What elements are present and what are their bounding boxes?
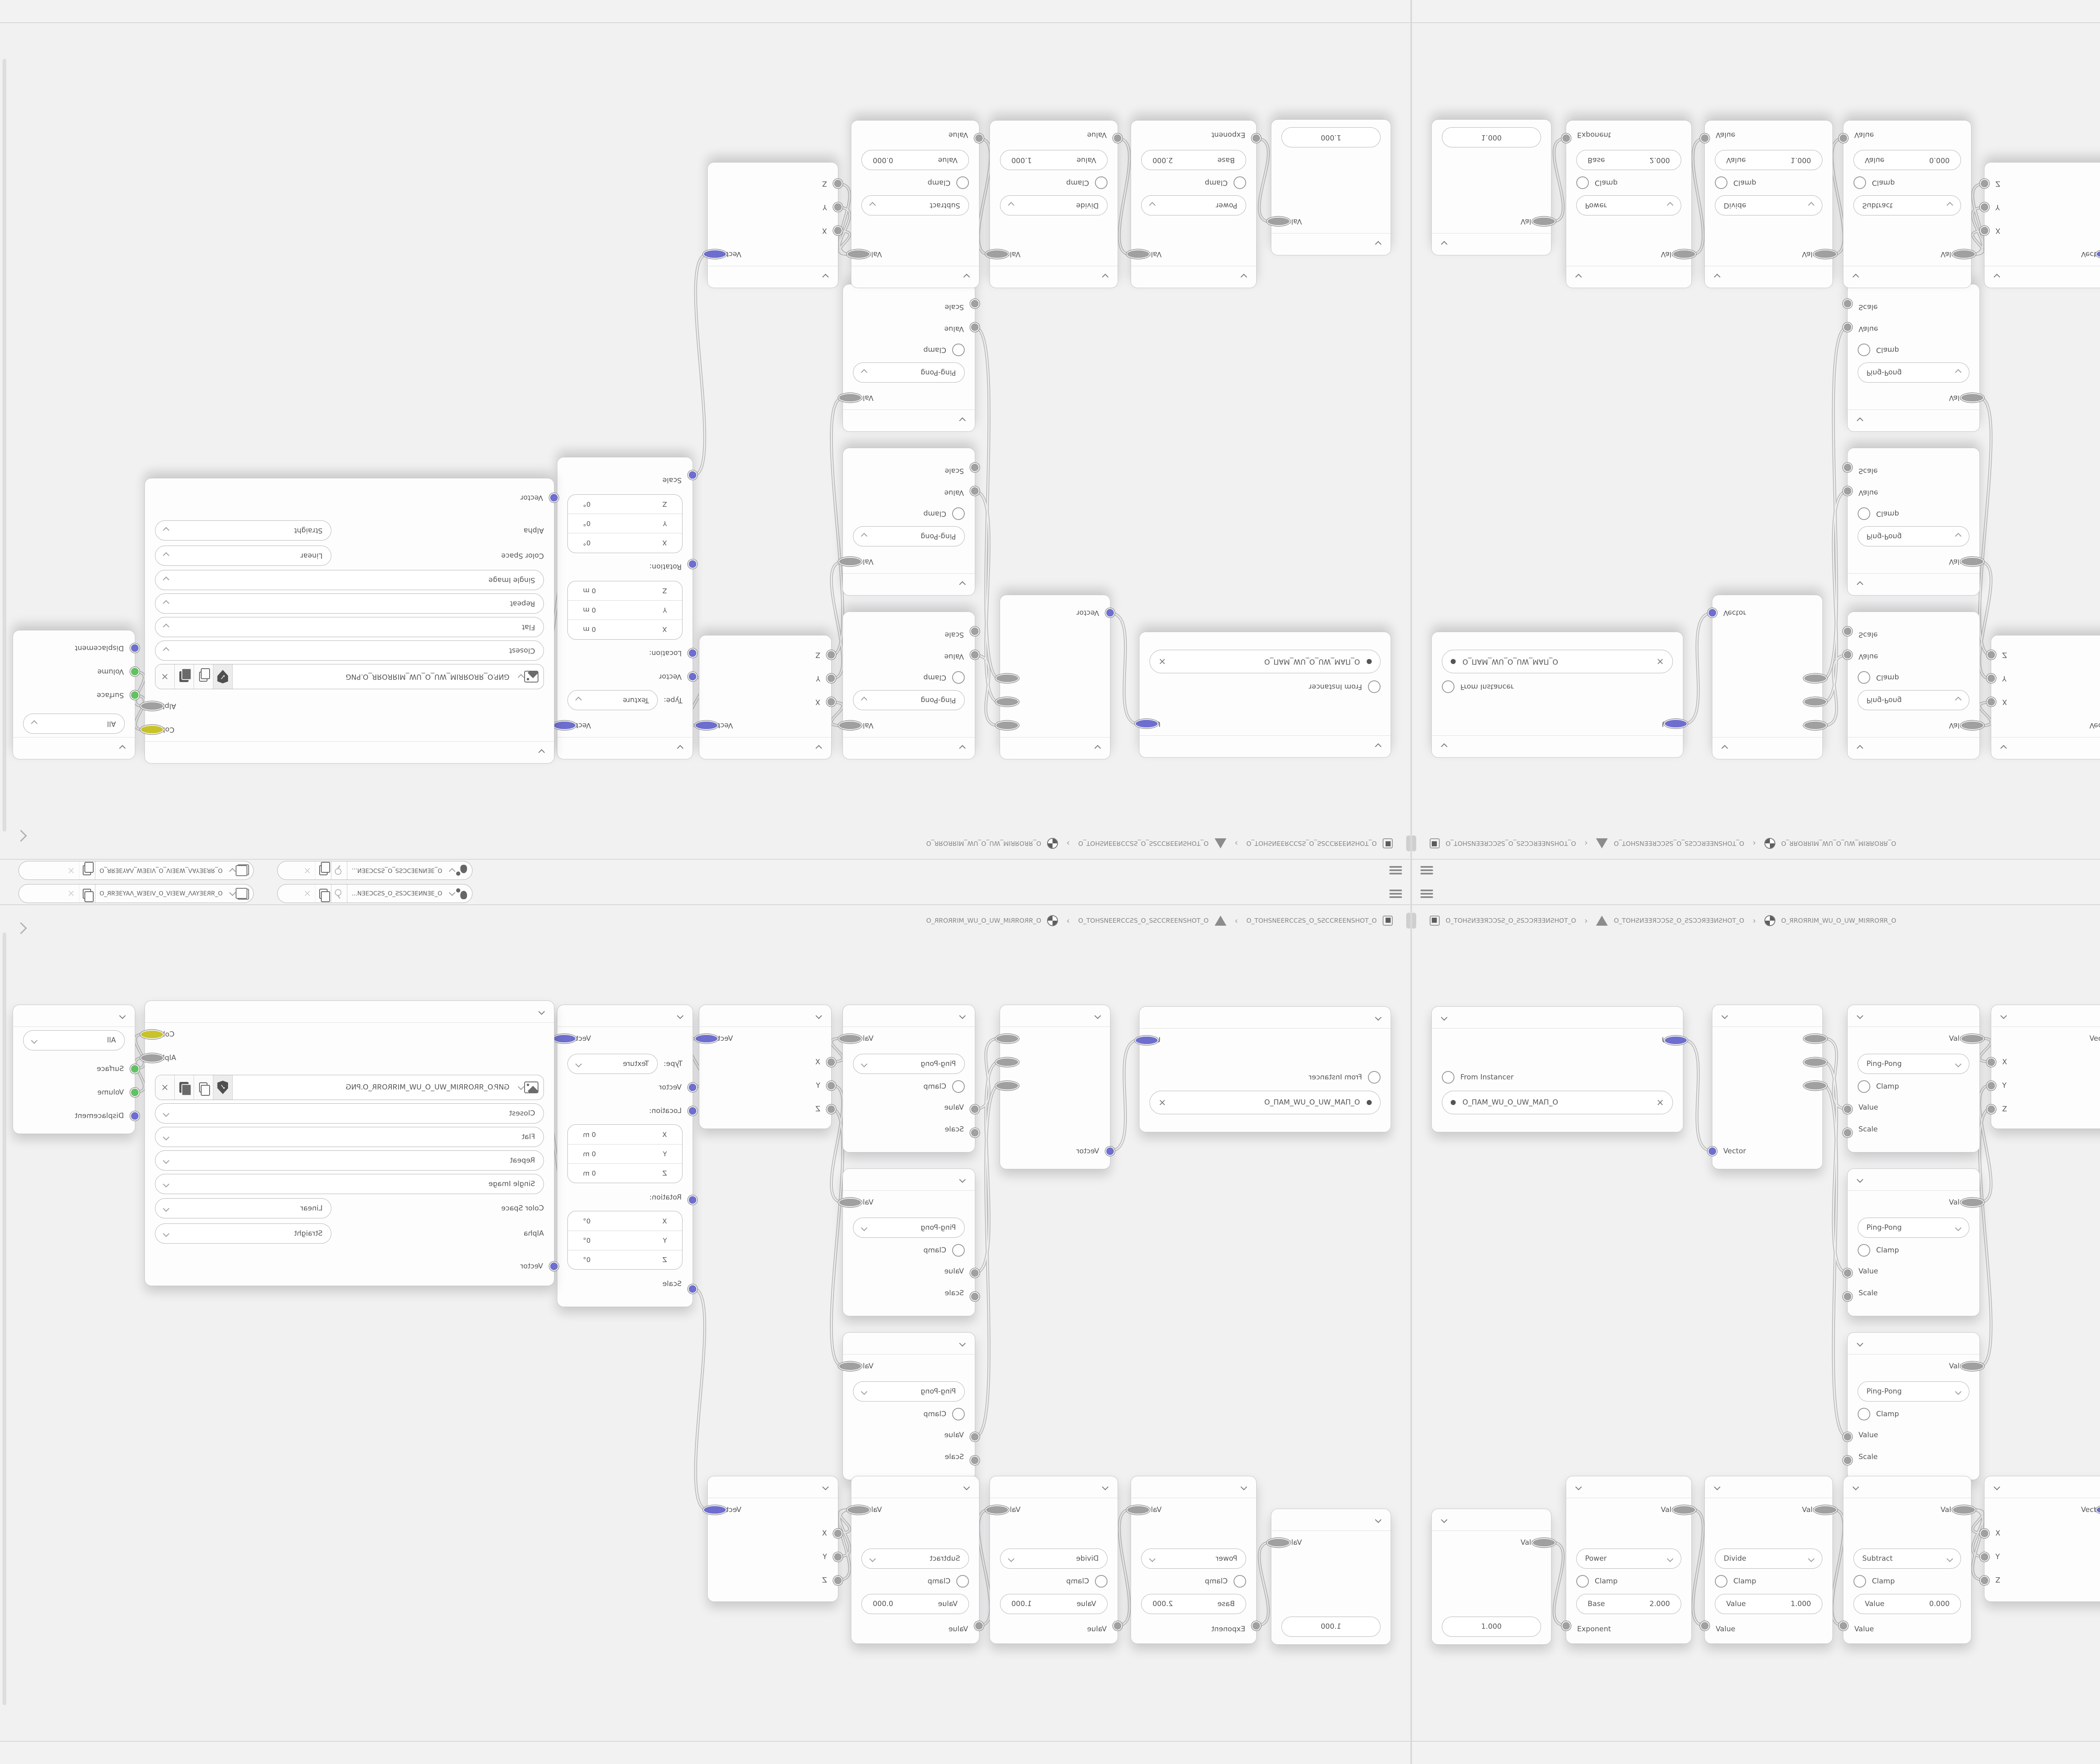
socket-uv-out[interactable] — [1135, 719, 1158, 728]
node-math-power[interactable]: Value Power Clamp Base2.000 Exponent — [1566, 120, 1692, 288]
socket-displacement-in[interactable] — [130, 643, 139, 653]
location-z-field[interactable]: Z0 m — [568, 1163, 682, 1183]
socket-value-in[interactable] — [974, 134, 984, 143]
clamp-checkbox[interactable]: Clamp — [843, 668, 975, 687]
socket-value-out[interactable] — [838, 393, 862, 402]
node-uv-map[interactable]: UV From Instancer O_ПAM_WU_O_UW_MAП_O× — [1139, 1006, 1391, 1132]
socket-uv-out[interactable] — [1135, 1036, 1158, 1045]
node-collapse-button[interactable] — [843, 1333, 975, 1354]
node-math-ping-pong-2[interactable]: Value Ping-Pong Clamp Value Scale — [1847, 1168, 1980, 1316]
socket-value-out[interactable] — [838, 557, 862, 566]
rotation-z-field[interactable]: Z0° — [568, 1250, 682, 1269]
socket-z-in[interactable] — [827, 1105, 836, 1114]
pin-scene-button[interactable] — [331, 861, 347, 879]
socket-value-in[interactable] — [1843, 1432, 1852, 1441]
mapping-type-dropdown[interactable]: Texture — [567, 1054, 658, 1074]
socket-x-in[interactable] — [1987, 1058, 1996, 1067]
rotation-xyz-fields[interactable]: X0° Y0° Z0° — [567, 494, 682, 553]
socket-value-in[interactable] — [1843, 323, 1852, 332]
region-handle[interactable] — [1406, 835, 1411, 851]
socket-value-in[interactable] — [1113, 1621, 1122, 1630]
image-name[interactable]: GИP.O_ЯROЯRIM_WU_O_UW_MIЯROЯR_O.PNG — [233, 672, 515, 681]
socket-vector-out[interactable] — [553, 721, 576, 730]
hamburger-menu-icon[interactable] — [1420, 865, 1433, 876]
mapping-type-dropdown[interactable]: Texture — [567, 690, 658, 710]
socket-color-out[interactable] — [140, 1030, 164, 1039]
socket-exponent-in[interactable] — [1562, 1621, 1571, 1630]
clamp-checkbox[interactable]: Clamp — [1705, 1572, 1832, 1591]
socket-scale-in[interactable] — [970, 1292, 979, 1301]
target-dropdown[interactable]: All — [23, 714, 125, 734]
rotation-xyz-fields[interactable]: X0° Y0° Z0° — [567, 1211, 682, 1270]
copy-image-button[interactable] — [194, 1075, 213, 1100]
node-separate-xyz[interactable]: X Y Z Vector — [1712, 1005, 1823, 1169]
node-collapse-button[interactable] — [145, 1001, 554, 1023]
operation-dropdown[interactable]: Ping-Pong — [1858, 1218, 1969, 1238]
clamp-checkbox[interactable]: Clamp — [1843, 173, 1971, 192]
uv-map-selector[interactable]: O_ПAM_WU_O_UW_MAП_O× — [1442, 650, 1673, 673]
socket-value-out[interactable] — [1961, 393, 1984, 402]
node-collapse-button[interactable] — [1705, 266, 1832, 288]
node-collapse-button[interactable] — [1848, 409, 1979, 431]
close-icon[interactable]: × — [1656, 656, 1664, 667]
socket-value-out[interactable] — [1672, 1505, 1696, 1515]
socket-scale-in[interactable] — [970, 1128, 979, 1137]
node-material-output[interactable]: All Surface Volume Displacement — [13, 630, 135, 759]
node-collapse-button[interactable] — [851, 1476, 979, 1498]
socket-z-in[interactable] — [1987, 1105, 1996, 1114]
socket-vector-out[interactable] — [695, 721, 718, 730]
unlink-scene-button[interactable]: × — [299, 885, 315, 903]
projection-dropdown[interactable]: Flat — [155, 617, 544, 637]
base-field[interactable]: Base2.000 — [1576, 1594, 1681, 1614]
operation-dropdown[interactable]: Divide — [1715, 195, 1822, 215]
clamp-checkbox[interactable]: Clamp — [843, 1077, 975, 1096]
node-collapse-button[interactable] — [1131, 266, 1256, 288]
socket-surface-in[interactable] — [130, 690, 139, 700]
node-collapse-button[interactable] — [1991, 1005, 2100, 1027]
scene-name[interactable]: O_ƎEИNƎEƆCƧS_O_ƧSƆCƎEИ... — [347, 890, 446, 897]
source-dropdown[interactable]: Single Image — [155, 570, 544, 590]
socket-value-out[interactable] — [1814, 249, 1837, 259]
rotation-x-field[interactable]: X0° — [568, 533, 682, 553]
operation-dropdown[interactable]: Divide — [1000, 1549, 1108, 1569]
node-collapse-button[interactable] — [1848, 1005, 1979, 1027]
rotation-x-field[interactable]: X0° — [568, 1211, 682, 1231]
node-collapse-button[interactable] — [1566, 266, 1691, 288]
value-field[interactable]: Value0.000 — [861, 150, 969, 170]
node-combine-xyz-bottom[interactable]: Vector X Y Z — [707, 162, 838, 288]
socket-z-in[interactable] — [827, 650, 836, 659]
node-collapse-button[interactable] — [1432, 233, 1551, 255]
node-math-ping-pong-1[interactable]: Value Ping-Pong Clamp Value Scale — [1847, 1005, 1980, 1152]
region-handle[interactable] — [1406, 913, 1411, 929]
node-collapse-button[interactable] — [1848, 737, 1979, 759]
alpha-dropdown[interactable]: Straight — [155, 520, 331, 541]
node-collapse-button[interactable] — [843, 1169, 975, 1191]
socket-z-in[interactable] — [1987, 650, 1996, 659]
node-math-subtract[interactable]: Value Subtract Clamp Value0.000 Value — [1843, 120, 1971, 288]
location-x-field[interactable]: X0 m — [568, 620, 682, 639]
socket-y-in[interactable] — [827, 674, 836, 683]
socket-value-out[interactable] — [1961, 1362, 1984, 1371]
socket-exponent-in[interactable] — [1562, 134, 1571, 143]
node-collapse-button[interactable] — [843, 409, 975, 431]
operation-dropdown[interactable]: Ping-Pong — [1858, 526, 1969, 546]
node-collapse-button[interactable] — [699, 737, 831, 759]
operation-dropdown[interactable]: Subtract — [861, 195, 969, 215]
pin-scene-button[interactable] — [331, 885, 347, 903]
socket-y-in[interactable] — [1987, 1081, 1996, 1090]
node-math-subtract[interactable]: Value Subtract Clamp Value0.000 Value — [851, 1476, 979, 1644]
socket-value-in[interactable] — [1839, 134, 1848, 143]
image-datablock-selector[interactable]: GИP.O_ЯROЯRIM_WU_O_UW_MIЯROЯR_O.PNG ✓ × — [155, 1075, 544, 1100]
socket-scale-in[interactable] — [970, 463, 979, 472]
remove-view-layer-button[interactable]: × — [63, 861, 79, 879]
socket-scale-in[interactable] — [970, 1456, 979, 1465]
remove-view-layer-button[interactable]: × — [63, 885, 79, 903]
clamp-checkbox[interactable]: Clamp — [843, 341, 975, 359]
node-math-ping-pong-3[interactable]: Value Ping-Pong Clamp Value Scale — [1847, 284, 1980, 432]
operation-dropdown[interactable]: Ping-Pong — [853, 1381, 965, 1402]
socket-value-in[interactable] — [1843, 486, 1852, 496]
node-image-texture[interactable]: Color Alpha GИP.O_ЯROЯRIM_WU_O_UW_MIЯROЯ… — [144, 1000, 554, 1286]
node-math-power[interactable]: Value Power Clamp Base2.000 Exponent — [1131, 120, 1257, 288]
clamp-checkbox[interactable]: Clamp — [1566, 1572, 1691, 1591]
operation-dropdown[interactable]: Divide — [1000, 195, 1108, 215]
operation-dropdown[interactable]: Power — [1141, 195, 1246, 215]
region-handle[interactable] — [1411, 913, 1416, 929]
socket-y-in[interactable] — [833, 1552, 843, 1562]
socket-value-out[interactable] — [1814, 1505, 1837, 1515]
socket-value-out[interactable] — [1267, 1538, 1290, 1547]
socket-x-out[interactable] — [1803, 721, 1827, 730]
hamburger-menu-icon[interactable] — [1420, 888, 1433, 899]
from-instancer-checkbox[interactable]: From Instancer — [1139, 677, 1391, 696]
socket-value-out[interactable] — [1532, 217, 1556, 226]
socket-vector-in[interactable] — [1708, 1147, 1717, 1156]
close-icon[interactable]: × — [1656, 1097, 1664, 1108]
socket-value-out[interactable] — [1961, 721, 1984, 730]
close-icon[interactable]: × — [1158, 656, 1166, 667]
hamburger-menu-icon[interactable] — [1389, 888, 1402, 899]
node-collapse-button[interactable] — [1848, 573, 1979, 595]
base-field[interactable]: Base2.000 — [1576, 150, 1681, 170]
color-space-dropdown[interactable]: Linear — [155, 1198, 331, 1218]
node-value[interactable]: Value 1.000 — [1271, 119, 1391, 255]
operation-dropdown[interactable]: Ping-Pong — [1858, 690, 1969, 710]
socket-value-out[interactable] — [1952, 1505, 1976, 1515]
node-collapse-button[interactable] — [1139, 735, 1391, 757]
operation-dropdown[interactable]: Ping-Pong — [853, 526, 965, 546]
clamp-checkbox[interactable]: Clamp — [1131, 1572, 1256, 1591]
socket-scale-in[interactable] — [1843, 299, 1852, 308]
operation-dropdown[interactable]: Ping-Pong — [853, 1218, 965, 1238]
node-math-ping-pong-3[interactable]: Value Ping-Pong Clamp Value Scale — [843, 1332, 975, 1480]
node-math-ping-pong-1[interactable]: Value Ping-Pong Clamp Value Scale — [1847, 612, 1980, 759]
node-collapse-button[interactable] — [699, 1005, 831, 1027]
node-collapse-button[interactable] — [1432, 1509, 1551, 1531]
node-math-ping-pong-2[interactable]: Value Ping-Pong Clamp Value Scale — [843, 1168, 975, 1316]
node-collapse-button[interactable] — [1139, 1007, 1391, 1029]
copy-image-button[interactable] — [194, 664, 213, 689]
socket-value-in[interactable] — [1839, 1621, 1848, 1630]
node-collapse-button[interactable] — [843, 1005, 975, 1027]
socket-value-in[interactable] — [970, 650, 979, 659]
node-collapse-button[interactable] — [708, 1476, 838, 1498]
socket-location-in[interactable] — [688, 1106, 697, 1116]
socket-vector-out[interactable] — [703, 249, 727, 259]
socket-value-in[interactable] — [1700, 134, 1709, 143]
node-collapse-button[interactable] — [1984, 266, 2100, 288]
node-combine-xyz-top[interactable]: Vector X Y Z — [699, 635, 832, 759]
socket-uv-out[interactable] — [1664, 1036, 1688, 1045]
socket-volume-in[interactable] — [130, 1088, 139, 1097]
node-collapse-button[interactable] — [13, 737, 135, 759]
socket-value-out[interactable] — [1126, 1505, 1150, 1515]
socket-vector-in[interactable] — [688, 672, 697, 681]
clamp-checkbox[interactable]: Clamp — [990, 173, 1118, 192]
socket-value-out[interactable] — [847, 249, 870, 259]
node-combine-xyz-bottom[interactable]: Vector X Y Z — [707, 1476, 838, 1602]
unlink-image-button[interactable]: × — [155, 664, 175, 689]
unlink-image-button[interactable]: × — [155, 1075, 175, 1100]
socket-z-in[interactable] — [1980, 1576, 1989, 1585]
socket-alpha-out[interactable] — [140, 701, 164, 711]
region-handle[interactable] — [1411, 835, 1416, 851]
interpolation-dropdown[interactable]: Closest — [155, 1103, 544, 1123]
node-collapse-button[interactable] — [843, 737, 975, 759]
clamp-checkbox[interactable]: Clamp — [1843, 1572, 1971, 1591]
socket-vector-out[interactable] — [553, 1034, 576, 1043]
node-collapse-button[interactable] — [1843, 266, 1971, 288]
location-x-field[interactable]: X0 m — [568, 1125, 682, 1144]
clamp-checkbox[interactable]: Clamp — [851, 1572, 979, 1591]
rotation-z-field[interactable]: Z0° — [568, 495, 682, 514]
node-math-power[interactable]: Value Power Clamp Base2.000 Exponent — [1131, 1476, 1257, 1644]
node-math-ping-pong-2[interactable]: Value Ping-Pong Clamp Value Scale — [1847, 448, 1980, 596]
clamp-checkbox[interactable]: Clamp — [843, 1405, 975, 1423]
node-math-ping-pong-3[interactable]: Value Ping-Pong Clamp Value Scale — [1847, 1332, 1980, 1480]
node-collapse-button[interactable] — [1991, 737, 2100, 759]
extension-dropdown[interactable]: Repeat — [155, 593, 544, 614]
node-mapping[interactable]: Vector Type: Texture Vector Location: X0… — [557, 457, 693, 759]
socket-value-out[interactable] — [838, 1034, 862, 1043]
from-instancer-checkbox[interactable]: From Instancer — [1432, 677, 1683, 696]
node-collapse-button[interactable] — [1131, 1476, 1256, 1498]
clamp-checkbox[interactable]: Clamp — [851, 173, 979, 192]
socket-value-in[interactable] — [970, 486, 979, 496]
vertical-scrollbar[interactable] — [3, 932, 6, 1705]
operation-dropdown[interactable]: Power — [1576, 195, 1681, 215]
operation-dropdown[interactable]: Ping-Pong — [853, 1054, 965, 1074]
socket-z-in[interactable] — [833, 179, 843, 188]
socket-value-out[interactable] — [1267, 217, 1290, 226]
socket-y-in[interactable] — [1987, 674, 1996, 683]
node-uv-map[interactable]: UV From Instancer O_ПAM_WU_O_UW_MAП_O× — [1139, 632, 1391, 758]
node-math-power[interactable]: Value Power Clamp Base2.000 Exponent — [1566, 1476, 1692, 1644]
value-field[interactable]: Value1.000 — [1000, 150, 1108, 170]
value-field[interactable]: Value1.000 — [1000, 1594, 1108, 1614]
node-math-ping-pong-1[interactable]: Value Ping-Pong Clamp Value Scale — [843, 1005, 975, 1152]
rotation-y-field[interactable]: Y0° — [568, 514, 682, 533]
clamp-checkbox[interactable]: Clamp — [843, 1241, 975, 1260]
socket-surface-in[interactable] — [130, 1064, 139, 1074]
socket-z-in[interactable] — [833, 1576, 843, 1585]
node-collapse-button[interactable] — [1848, 1169, 1979, 1191]
socket-value-out[interactable] — [1672, 249, 1696, 259]
clamp-checkbox[interactable]: Clamp — [1566, 173, 1691, 192]
node-collapse-button[interactable] — [1848, 1333, 1979, 1354]
copy-scene-button[interactable] — [315, 885, 331, 903]
interpolation-dropdown[interactable]: Closest — [155, 640, 544, 661]
operation-dropdown[interactable]: Ping-Pong — [1858, 362, 1969, 383]
socket-displacement-in[interactable] — [130, 1111, 139, 1121]
value-field[interactable]: Value0.000 — [1853, 150, 1961, 170]
socket-value-out[interactable] — [1952, 249, 1976, 259]
socket-x-in[interactable] — [833, 226, 843, 235]
value-field[interactable]: 1.000 — [1281, 127, 1381, 147]
clamp-checkbox[interactable]: Clamp — [1848, 1405, 1979, 1423]
operation-dropdown[interactable]: Ping-Pong — [853, 690, 965, 710]
scene-selector[interactable]: O_ƎEИNƎEƆCƧS_O_ƧSƆCƎEИ... × — [277, 861, 472, 880]
socket-z-out[interactable] — [995, 1081, 1019, 1090]
socket-exponent-in[interactable] — [1252, 134, 1261, 143]
socket-x-in[interactable] — [1987, 697, 1996, 706]
location-xyz-fields[interactable]: X0 m Y0 m Z0 m — [567, 581, 682, 640]
image-datablock-selector[interactable]: GИP.O_ЯROЯRIM_WU_O_UW_MIЯROЯR_O.PNG ✓ × — [155, 664, 544, 689]
socket-vector-out[interactable] — [703, 1505, 727, 1515]
rotation-y-field[interactable]: Y0° — [568, 1231, 682, 1250]
close-icon[interactable]: × — [1158, 1097, 1166, 1108]
socket-value-in[interactable] — [970, 1268, 979, 1278]
location-y-field[interactable]: Y0 m — [568, 601, 682, 620]
value-field[interactable]: Value0.000 — [861, 1594, 969, 1614]
clamp-checkbox[interactable]: Clamp — [1705, 173, 1832, 192]
node-uv-map[interactable]: UV From Instancer O_ПAM_WU_O_UW_MAП_O× — [1431, 1006, 1683, 1132]
node-collapse-button[interactable] — [1566, 1476, 1691, 1498]
socket-y-in[interactable] — [833, 202, 843, 212]
socket-z-out[interactable] — [995, 674, 1019, 683]
node-mapping[interactable]: Vector Type: Texture Vector Location: X0… — [557, 1005, 693, 1307]
clamp-checkbox[interactable]: Clamp — [1848, 504, 1979, 523]
from-instancer-checkbox[interactable]: From Instancer — [1432, 1068, 1683, 1087]
socket-value-in[interactable] — [1843, 1268, 1852, 1278]
socket-scale-in[interactable] — [1843, 1292, 1852, 1301]
source-dropdown[interactable]: Single Image — [155, 1174, 544, 1194]
socket-vector-in[interactable] — [1105, 608, 1115, 617]
node-combine-xyz-top[interactable]: Vector X Y Z — [1991, 635, 2100, 759]
socket-color-out[interactable] — [140, 725, 164, 734]
clamp-checkbox[interactable]: Clamp — [1848, 1241, 1979, 1260]
base-field[interactable]: Base2.000 — [1141, 150, 1246, 170]
node-collapse-button[interactable] — [708, 266, 838, 288]
socket-z-out[interactable] — [1803, 1081, 1827, 1090]
vertical-scrollbar[interactable] — [3, 59, 6, 832]
value-field[interactable]: 1.000 — [1442, 127, 1541, 147]
socket-x-in[interactable] — [1980, 1529, 1989, 1538]
socket-scale-in[interactable] — [1843, 1128, 1852, 1137]
copy-view-layer-button[interactable] — [79, 885, 95, 903]
node-collapse-button[interactable] — [1432, 1007, 1683, 1029]
socket-value-out[interactable] — [847, 1505, 870, 1515]
operation-dropdown[interactable]: Subtract — [1853, 1549, 1961, 1569]
operation-dropdown[interactable]: Subtract — [1853, 195, 1961, 215]
socket-vector-out[interactable] — [695, 1034, 718, 1043]
clamp-checkbox[interactable]: Clamp — [990, 1572, 1118, 1591]
color-space-dropdown[interactable]: Linear — [155, 546, 331, 566]
value-field[interactable]: Value1.000 — [1715, 150, 1822, 170]
uv-map-selector[interactable]: O_ПAM_WU_O_UW_MAП_O× — [1150, 650, 1381, 673]
socket-x-in[interactable] — [827, 1058, 836, 1067]
socket-alpha-out[interactable] — [140, 1053, 164, 1063]
socket-scale-in[interactable] — [970, 627, 979, 636]
socket-value-out[interactable] — [838, 1362, 862, 1371]
socket-value-in[interactable] — [970, 1432, 979, 1441]
fake-user-button[interactable]: ✓ — [213, 664, 233, 689]
node-separate-xyz[interactable]: X Y Z Vector — [1000, 595, 1110, 759]
clamp-checkbox[interactable]: Clamp — [1848, 1077, 1979, 1096]
node-collapse-button[interactable] — [557, 1005, 693, 1027]
copy-view-layer-button[interactable] — [79, 861, 95, 879]
node-collapse-button[interactable] — [1271, 233, 1391, 255]
node-uv-map[interactable]: UV From Instancer O_ПAM_WU_O_UW_MAП_O× — [1431, 632, 1683, 758]
scene-selector[interactable]: O_ƎEИNƎEƆCƧS_O_ƧSƆCƎEИ... × — [277, 884, 472, 903]
socket-uv-out[interactable] — [1664, 719, 1688, 728]
node-collapse-button[interactable] — [851, 266, 979, 288]
node-collapse-button[interactable] — [1712, 1005, 1822, 1027]
base-field[interactable]: Base2.000 — [1141, 1594, 1246, 1614]
node-image-texture[interactable]: Color Alpha GИP.O_ЯROЯRIM_WU_O_UW_MIЯROЯ… — [144, 478, 554, 764]
operation-dropdown[interactable]: Power — [1141, 1549, 1246, 1569]
location-y-field[interactable]: Y0 m — [568, 1144, 682, 1163]
view-layer-selector[interactable]: O_ЯRƎEYAΛ_WƎEIV_O_VIƎEW_ΛAYƎEЯR_O × — [18, 861, 254, 880]
socket-location-in[interactable] — [688, 648, 697, 658]
node-collapse-button[interactable] — [1843, 1476, 1971, 1498]
node-collapse-button[interactable] — [557, 737, 693, 759]
socket-value-out[interactable] — [985, 249, 1009, 259]
operation-dropdown[interactable]: Power — [1576, 1549, 1681, 1569]
node-combine-xyz-bottom[interactable]: Vector X Y Z — [1984, 162, 2100, 288]
socket-scale-in[interactable] — [688, 1284, 697, 1294]
node-value[interactable]: Value 1.000 — [1431, 119, 1551, 255]
socket-value-out[interactable] — [1126, 249, 1150, 259]
clamp-checkbox[interactable]: Clamp — [1848, 668, 1979, 687]
operation-dropdown[interactable]: Divide — [1715, 1549, 1822, 1569]
node-collapse-button[interactable] — [1000, 1005, 1110, 1027]
socket-y-out[interactable] — [995, 1058, 1019, 1067]
target-dropdown[interactable]: All — [23, 1030, 125, 1050]
node-value[interactable]: Value 1.000 — [1271, 1509, 1391, 1645]
socket-vector-in[interactable] — [549, 493, 559, 502]
clamp-checkbox[interactable]: Clamp — [843, 504, 975, 523]
node-collapse-button[interactable] — [990, 266, 1118, 288]
node-math-subtract[interactable]: Value Subtract Clamp Value0.000 Value — [1843, 1476, 1971, 1644]
socket-value-out[interactable] — [1961, 1034, 1984, 1043]
socket-value-out[interactable] — [838, 1198, 862, 1207]
projection-dropdown[interactable]: Flat — [155, 1127, 544, 1147]
socket-rotation-in[interactable] — [688, 559, 697, 569]
node-math-ping-pong-1[interactable]: Value Ping-Pong Clamp Value Scale — [843, 612, 975, 759]
node-collapse-button[interactable] — [1000, 737, 1110, 759]
pack-image-button[interactable] — [175, 664, 194, 689]
socket-x-in[interactable] — [827, 697, 836, 706]
socket-scale-in[interactable] — [970, 299, 979, 308]
socket-value-in[interactable] — [1700, 1621, 1709, 1630]
node-math-divide[interactable]: Value Divide Clamp Value1.000 Value — [1704, 1476, 1833, 1644]
socket-value-in[interactable] — [974, 1621, 984, 1630]
node-value[interactable]: Value 1.000 — [1431, 1509, 1551, 1645]
